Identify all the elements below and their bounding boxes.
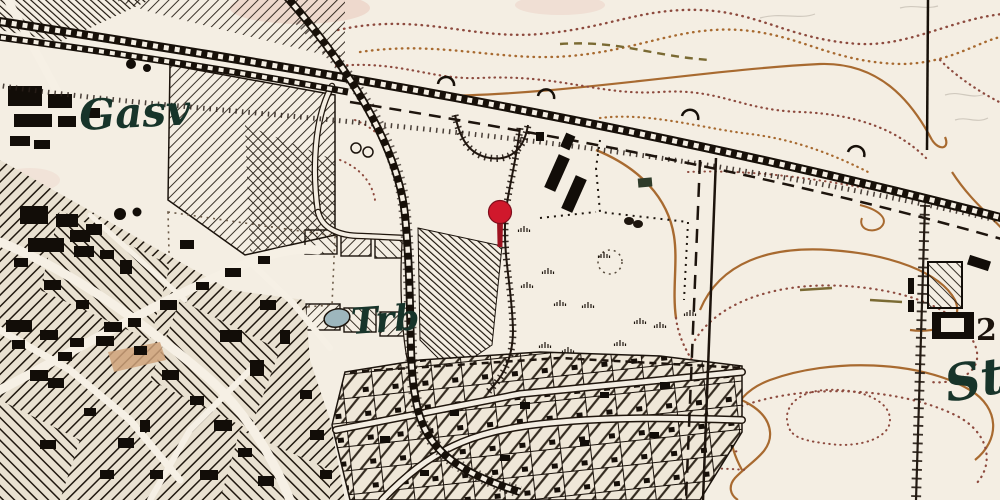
label-elevation: 2 — [976, 313, 997, 348]
label-field: Trb — [350, 296, 421, 343]
allotment-gardens — [332, 352, 745, 500]
map-artwork: Gasv Trb St 2 — [0, 0, 1000, 500]
label-gasworks: Gasv — [78, 85, 192, 140]
map-canvas[interactable]: Gasv Trb St 2 — [0, 0, 1000, 500]
label-station: St — [940, 345, 1000, 413]
